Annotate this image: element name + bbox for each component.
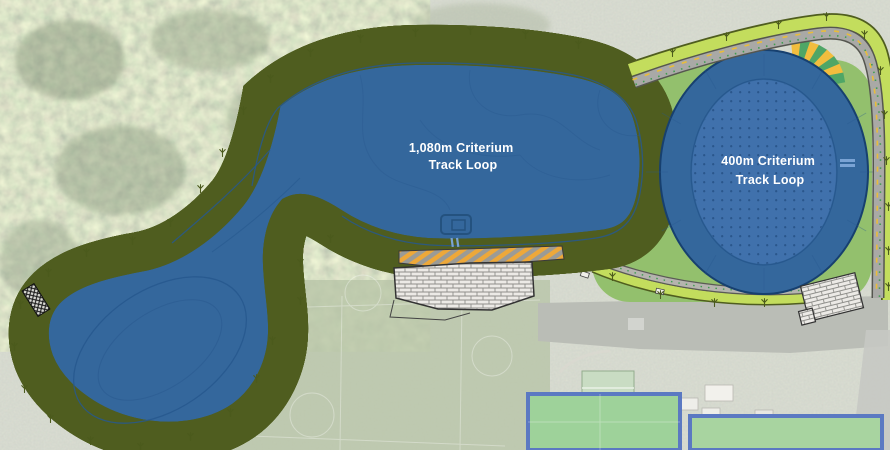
track-1080-label-line2: Track Loop [429, 158, 498, 172]
clearing-mark [628, 318, 644, 330]
track-400-label-line1: 400m Criterium [721, 154, 815, 168]
court-right [690, 416, 882, 450]
track-400-label-line2: Track Loop [736, 173, 805, 187]
shed [705, 385, 733, 401]
track-1080-label-line1: 1,080m Criterium [409, 141, 514, 155]
track-400-infield-dots [692, 80, 836, 264]
site-plan-map: 1,080m Criterium Track Loop 400m Criteri… [0, 0, 890, 450]
paved-plaza [394, 262, 534, 310]
site-plan-page: 1,080m Criterium Track Loop 400m Criteri… [0, 0, 890, 450]
